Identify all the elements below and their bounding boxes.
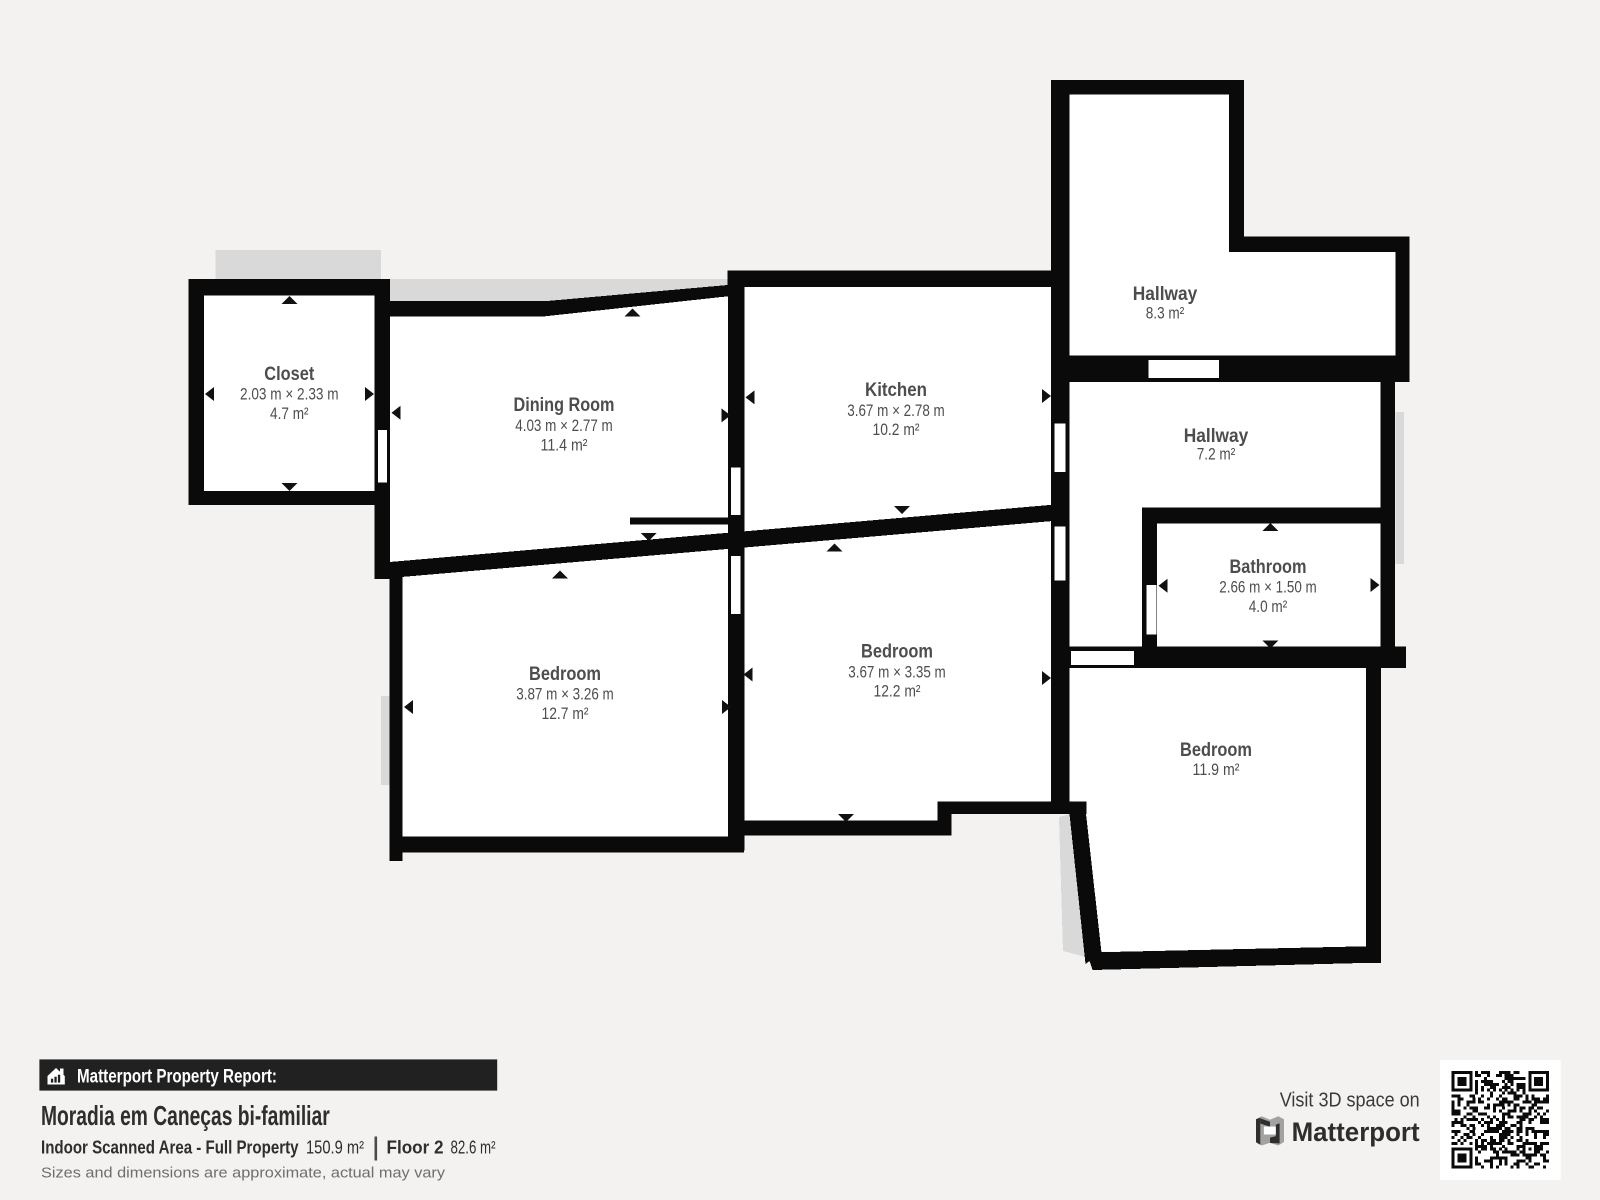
svg-text:Dining Room: Dining Room bbox=[514, 394, 615, 416]
svg-text:150.9 m²: 150.9 m² bbox=[306, 1138, 364, 1158]
svg-text:Bathroom: Bathroom bbox=[1230, 556, 1307, 578]
svg-text:Floor 2: Floor 2 bbox=[387, 1138, 444, 1158]
svg-text:Visit 3D space on: Visit 3D space on bbox=[1280, 1090, 1420, 1112]
svg-text:Moradia em Caneças bi-familiar: Moradia em Caneças bi-familiar bbox=[41, 1100, 330, 1131]
svg-text:3.67 m × 3.35 m: 3.67 m × 3.35 m bbox=[848, 663, 946, 682]
svg-text:4.0 m²: 4.0 m² bbox=[1249, 597, 1288, 616]
svg-text:Closet: Closet bbox=[264, 363, 314, 385]
svg-text:Sizes and dimensions are appro: Sizes and dimensions are approximate, ac… bbox=[41, 1165, 446, 1182]
svg-text:3.87 m × 3.26 m: 3.87 m × 3.26 m bbox=[516, 685, 614, 704]
svg-text:12.2 m²: 12.2 m² bbox=[874, 682, 921, 701]
svg-text:Matterport Property Report:: Matterport Property Report: bbox=[77, 1066, 277, 1088]
svg-text:11.4 m²: 11.4 m² bbox=[541, 436, 588, 455]
svg-text:Bedroom: Bedroom bbox=[529, 663, 601, 685]
svg-text:Matterport: Matterport bbox=[1292, 1117, 1420, 1147]
svg-text:12.7 m²: 12.7 m² bbox=[542, 704, 589, 723]
svg-text:Hallway: Hallway bbox=[1133, 283, 1198, 305]
svg-text:82.6 m²: 82.6 m² bbox=[451, 1138, 496, 1158]
svg-text:Kitchen: Kitchen bbox=[865, 379, 927, 401]
svg-text:Bedroom: Bedroom bbox=[1180, 739, 1252, 761]
svg-text:11.9 m²: 11.9 m² bbox=[1193, 760, 1240, 779]
svg-text:7.2 m²: 7.2 m² bbox=[1197, 445, 1236, 464]
svg-text:4.7 m²: 4.7 m² bbox=[270, 404, 309, 423]
svg-text:2.03 m × 2.33 m: 2.03 m × 2.33 m bbox=[240, 385, 339, 404]
svg-text:10.2 m²: 10.2 m² bbox=[873, 420, 920, 439]
svg-text:4.03 m × 2.77 m: 4.03 m × 2.77 m bbox=[515, 416, 613, 435]
svg-text:2.66 m × 1.50 m: 2.66 m × 1.50 m bbox=[1219, 578, 1317, 597]
svg-text:8.3 m²: 8.3 m² bbox=[1146, 304, 1185, 323]
svg-text:3.67 m × 2.78 m: 3.67 m × 2.78 m bbox=[847, 401, 945, 420]
svg-text:Bedroom: Bedroom bbox=[861, 641, 933, 663]
svg-text:Indoor Scanned Area - Full Pro: Indoor Scanned Area - Full Property bbox=[41, 1138, 299, 1158]
